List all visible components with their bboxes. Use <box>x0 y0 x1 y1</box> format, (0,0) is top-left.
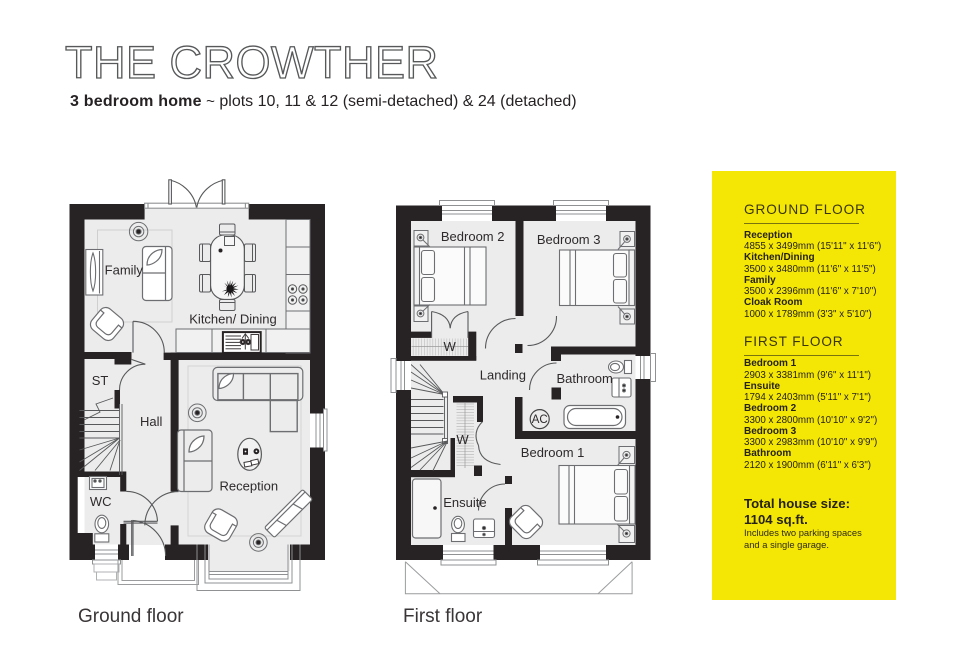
svg-text:Kitchen/ Dining: Kitchen/ Dining <box>189 312 276 327</box>
svg-text:WC: WC <box>90 494 112 509</box>
svg-text:ST: ST <box>92 373 109 388</box>
svg-text:Hall: Hall <box>140 414 163 429</box>
svg-text:Bedroom 2: Bedroom 2 <box>441 229 505 244</box>
svg-text:AC: AC <box>532 414 548 426</box>
svg-text:Family: Family <box>105 263 144 278</box>
svg-text:Bathroom: Bathroom <box>557 371 613 386</box>
svg-text:Bedroom 3: Bedroom 3 <box>537 232 601 247</box>
svg-text:Ensuite: Ensuite <box>443 495 486 510</box>
svg-text:Landing: Landing <box>480 368 526 383</box>
svg-text:Reception: Reception <box>220 479 279 494</box>
svg-text:W: W <box>444 339 457 354</box>
svg-text:Bedroom 1: Bedroom 1 <box>521 445 585 460</box>
svg-text:W: W <box>456 432 469 447</box>
